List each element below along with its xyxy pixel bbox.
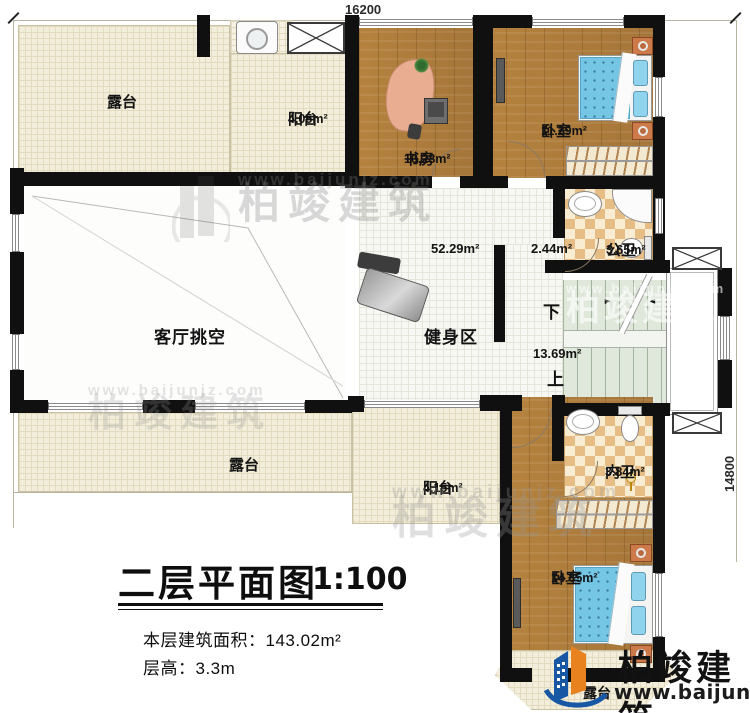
- title-underline: [118, 603, 383, 606]
- wall: [552, 403, 564, 461]
- wall: [359, 176, 432, 188]
- wall: [653, 26, 665, 77]
- window-icon: [12, 334, 20, 370]
- sink: [568, 191, 602, 217]
- wall: [197, 15, 210, 57]
- floor-terrace-bottom: [18, 412, 352, 492]
- window-icon: [720, 316, 730, 360]
- wardrobe: [566, 146, 653, 176]
- title-underline-thin: [118, 609, 383, 610]
- wall: [545, 260, 670, 273]
- pillow: [633, 91, 648, 117]
- toilet: [621, 415, 639, 442]
- washing-machine: [236, 21, 278, 54]
- page-title: 二层平面图: [118, 553, 318, 607]
- pillow: [631, 606, 646, 635]
- vent-shaft-icon: [672, 412, 722, 434]
- wall: [10, 252, 24, 334]
- wall: [305, 400, 352, 413]
- pillow: [633, 60, 648, 86]
- wall: [553, 188, 565, 238]
- pillow: [631, 572, 646, 601]
- wall: [718, 268, 732, 316]
- window-icon: [12, 214, 20, 252]
- tv-panel: [513, 578, 521, 628]
- wall: [143, 400, 195, 413]
- floor-height-info: 层高：3.3m: [143, 654, 235, 679]
- plant-icon: [414, 58, 429, 73]
- brand-website: www.baijunjz.com: [614, 680, 750, 704]
- nightstand: [630, 544, 652, 562]
- stair-arrow-icon: ◄: [648, 296, 657, 306]
- wall: [718, 360, 732, 408]
- vent-shaft-icon: [287, 22, 345, 54]
- wall: [348, 396, 364, 412]
- window-icon: [195, 402, 305, 410]
- wall: [10, 400, 48, 413]
- sink: [566, 409, 600, 435]
- floor-plan: 16200 14800: [0, 0, 750, 713]
- watermark-logo-icon: [172, 168, 230, 242]
- stair-up-label: 上: [547, 365, 564, 390]
- stair-down-label: 下: [543, 298, 560, 323]
- window-icon: [655, 198, 663, 234]
- window-icon: [655, 77, 663, 117]
- shaft-corridor: [666, 268, 718, 415]
- wall: [345, 15, 359, 188]
- brand-logo-icon: [540, 638, 614, 708]
- shaft-corridor-inner: [670, 272, 714, 411]
- wall: [473, 15, 493, 180]
- computer-monitor: [424, 98, 448, 124]
- window-icon: [364, 400, 480, 408]
- plan-boundary-bottom: [13, 492, 353, 493]
- wall: [460, 176, 508, 188]
- plan-scale: 1:100: [312, 562, 408, 597]
- nightstand: [632, 122, 653, 140]
- desk-speaker: [407, 123, 422, 140]
- dimension-height-label: 14800: [722, 428, 737, 492]
- wall: [653, 416, 665, 573]
- floor-area-info: 本层建筑面积：143.02m²: [143, 626, 341, 651]
- window-icon: [359, 17, 473, 26]
- window-icon: [532, 17, 624, 26]
- stair-arrow-icon: ►: [603, 296, 612, 306]
- window-icon: [655, 573, 663, 637]
- wall: [473, 15, 532, 28]
- dimension-width-label: 16200: [345, 2, 381, 17]
- vent-shaft-icon: [672, 247, 722, 270]
- floor-balcony-bottom: [352, 400, 500, 524]
- wardrobe: [556, 500, 653, 529]
- nightstand: [632, 37, 653, 55]
- wall: [500, 668, 532, 682]
- wall-lamp-stem: [630, 482, 632, 491]
- window-icon: [48, 402, 143, 410]
- tv-panel: [496, 58, 505, 103]
- toilet-tank: [618, 406, 642, 415]
- wall: [494, 245, 505, 342]
- wall: [500, 395, 512, 682]
